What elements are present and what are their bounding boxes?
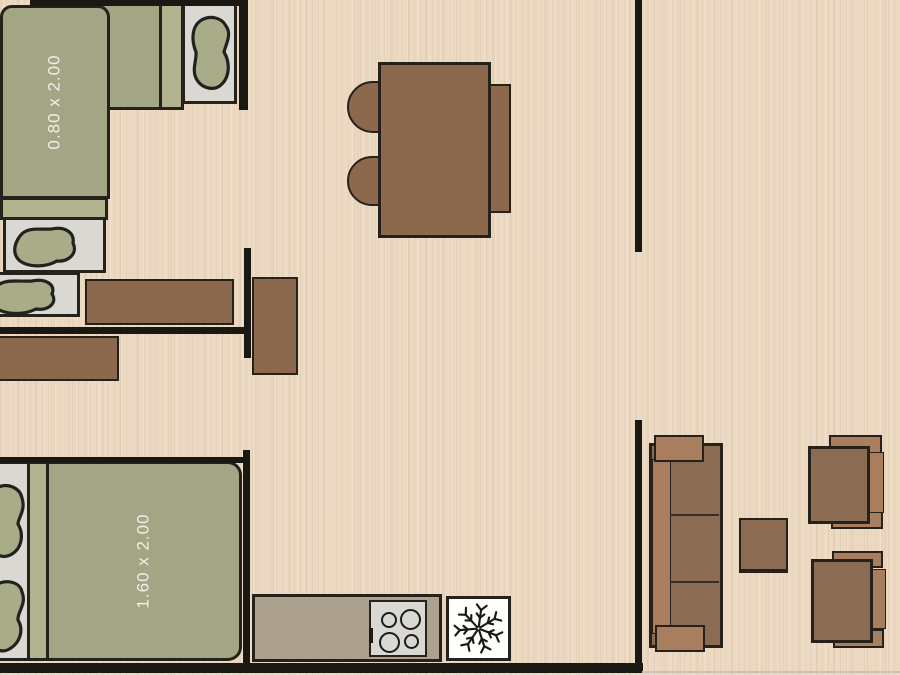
- bed-fold: [159, 1, 184, 110]
- pillow-icon: [0, 576, 28, 656]
- sofa-armrest: [655, 625, 705, 652]
- sofa-backrest: [652, 459, 671, 634]
- burner-ring-icon: [404, 634, 419, 649]
- wall-bedroom2-right: [243, 450, 250, 667]
- pillow-icon: [188, 12, 234, 96]
- cabinet-hall: [0, 336, 119, 381]
- single-bed-vertical: 0.80 x 2.00: [0, 5, 112, 275]
- stove-knob: [369, 628, 373, 643]
- wardrobe-bedroom1: [85, 279, 234, 325]
- armchair: [809, 549, 891, 650]
- coffee-table: [739, 518, 788, 573]
- burner-ring-icon: [379, 632, 400, 653]
- cushion-bench: [0, 272, 80, 319]
- single-bed-horizontal: [90, 0, 238, 112]
- bed-size-label: 0.80 x 2.00: [45, 54, 65, 149]
- sofa-armrest: [654, 435, 704, 462]
- sofa-cushion-line: [670, 514, 719, 516]
- stove: [369, 600, 427, 657]
- wall-bedroom1-bottom: [0, 327, 251, 334]
- wall-top: [30, 0, 248, 6]
- snowflake-icon: [449, 599, 508, 658]
- armchair: [806, 433, 888, 531]
- cabinet-vertical: [252, 277, 298, 375]
- dining-bench: [489, 84, 511, 213]
- dining-table: [378, 62, 491, 238]
- sofa: [646, 433, 726, 653]
- pillow-icon: [10, 223, 82, 271]
- double-bed: 1.60 x 2.00: [0, 460, 244, 663]
- bed-size-label: 1.60 x 2.00: [134, 513, 154, 608]
- armchair-seat: [808, 446, 870, 524]
- wall-hall-vertical: [244, 248, 251, 358]
- wall-living-lower: [635, 420, 642, 672]
- freezer: [446, 596, 511, 661]
- dining-chair: [347, 156, 380, 206]
- floor-plan: 0.80 x 2.00 1.60 x 2.00: [0, 0, 900, 675]
- wall-bedroom2-top: [0, 457, 245, 463]
- pillow-icon: [0, 275, 62, 317]
- armchair-seat: [811, 559, 873, 643]
- pillow-icon: [0, 480, 28, 560]
- burner-ring-icon: [400, 609, 421, 630]
- bed-duvet: 0.80 x 2.00: [0, 5, 110, 199]
- wall-bottom: [0, 663, 643, 673]
- dining-chair: [347, 81, 380, 133]
- wall-bedroom1-right: [239, 0, 248, 110]
- bed-duvet: 1.60 x 2.00: [46, 461, 242, 661]
- wall-living-upper: [635, 0, 642, 252]
- sofa-cushion-line: [670, 581, 719, 583]
- burner-ring-icon: [381, 612, 397, 628]
- floor-edge-line: [642, 671, 900, 673]
